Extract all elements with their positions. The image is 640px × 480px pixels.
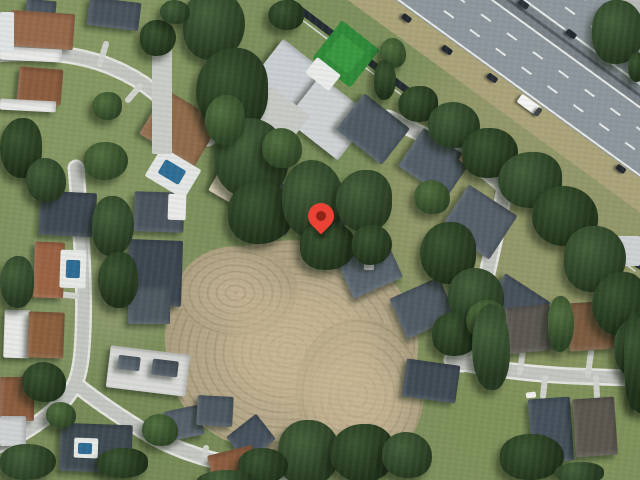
lane-edge-line — [327, 0, 640, 97]
tree-canopy — [278, 420, 340, 480]
house-roof — [128, 286, 170, 324]
driveway-court — [244, 85, 310, 150]
tree-canopy — [92, 196, 134, 256]
tree-canopy — [22, 362, 66, 402]
driveway — [58, 294, 76, 296]
tree-canopy — [228, 182, 294, 244]
highway-stripe — [336, 0, 640, 84]
marker-shadow — [314, 233, 328, 239]
tree-canopy — [238, 448, 288, 480]
white-roof-panel — [168, 194, 187, 221]
house-roof — [226, 414, 276, 463]
house-roof — [39, 191, 97, 238]
pool-enclosure — [145, 147, 202, 200]
tree-canopy — [398, 86, 438, 122]
white-shed — [305, 57, 341, 91]
tree-canopy — [330, 424, 394, 480]
location-marker[interactable] — [303, 198, 340, 235]
lane-dash-line — [316, 0, 640, 111]
house-roof — [0, 99, 56, 113]
tree-canopy — [98, 252, 138, 308]
green-lawn-inner — [325, 34, 366, 75]
trees-layer — [0, 0, 640, 480]
street — [0, 52, 208, 138]
dirt-field-blob — [296, 318, 424, 466]
tree-canopy — [548, 296, 574, 352]
house-roof — [117, 355, 141, 372]
tree-canopy — [592, 0, 640, 64]
house-roof — [127, 239, 183, 307]
house-roof — [25, 0, 57, 18]
tree-canopy — [142, 414, 178, 446]
tree-canopy — [46, 402, 76, 428]
street — [388, 118, 510, 192]
highway-stripe — [328, 0, 640, 95]
tree-canopy — [432, 312, 480, 356]
car — [615, 164, 627, 175]
house-roof — [163, 405, 204, 442]
house-roof — [9, 10, 75, 50]
swimming-pool — [66, 260, 81, 278]
lane-edge-line — [295, 0, 640, 140]
car — [565, 28, 577, 39]
tree-canopy — [92, 92, 122, 120]
house-roof — [106, 345, 191, 396]
tree-canopy — [462, 128, 518, 178]
lane-edge-line — [252, 0, 640, 200]
dirt-light-spot — [300, 360, 400, 440]
house-roof — [208, 140, 272, 210]
tree-canopy — [382, 432, 432, 478]
grass-patch — [0, 0, 240, 230]
tree-canopy — [205, 95, 245, 145]
street-sidewalk — [452, 360, 640, 378]
house-roof — [458, 143, 489, 173]
texture-overlay — [0, 0, 640, 480]
lane-dash-line — [262, 0, 640, 186]
highway-stripe — [295, 0, 640, 141]
dirt-light-spot — [228, 292, 378, 402]
structures-layer — [0, 0, 640, 480]
lane-edge-line — [289, 0, 640, 148]
house-roof — [86, 0, 141, 31]
driveway — [204, 448, 206, 462]
house-roof — [246, 175, 309, 237]
lane-edge-line — [284, 0, 640, 156]
highway-stripe — [251, 0, 640, 201]
house-roof — [196, 395, 234, 427]
tree-canopy — [352, 225, 392, 265]
tree-canopy — [84, 142, 128, 180]
tree-canopy — [564, 226, 626, 292]
highway-stripe — [235, 0, 640, 224]
driveway-strip — [152, 36, 172, 154]
street-sidewalk — [78, 386, 294, 474]
driveway — [596, 378, 597, 396]
tree-canopy — [630, 364, 640, 414]
house-roof — [33, 241, 65, 298]
tree-canopy — [532, 186, 598, 246]
house-roof — [528, 397, 574, 464]
house-roof — [479, 273, 550, 343]
small-building — [612, 236, 640, 266]
dirt-field-blob — [156, 227, 429, 464]
tree-canopy — [0, 444, 56, 480]
tree-canopy — [472, 304, 510, 390]
car — [441, 44, 453, 55]
tree-canopy — [380, 38, 406, 68]
street — [452, 360, 640, 378]
house-roof — [246, 39, 333, 126]
house-roof — [0, 46, 62, 62]
house-roof — [139, 89, 221, 167]
tree-canopy — [628, 52, 640, 82]
house-roof — [0, 416, 26, 446]
lane-dash-line — [306, 0, 640, 126]
grass-patch — [430, 330, 640, 480]
driveway — [62, 256, 80, 258]
tree-canopy — [196, 48, 268, 133]
street-sidewalk — [0, 168, 84, 446]
grass-patch — [40, 330, 260, 480]
tree-canopy — [262, 128, 302, 168]
dirt-field — [0, 0, 640, 480]
swimming-pool — [158, 159, 187, 185]
tree-canopy — [374, 60, 396, 100]
white-truck — [516, 94, 541, 116]
truck-cab — [533, 107, 542, 117]
tree-canopy — [500, 434, 564, 480]
driveway — [520, 350, 523, 372]
car — [401, 13, 413, 24]
swimming-pool — [78, 443, 92, 454]
dirt-field-blob — [178, 246, 298, 336]
house-roof — [389, 277, 456, 339]
driveway — [588, 352, 591, 374]
house-roof — [0, 377, 34, 421]
highway-layer — [0, 0, 640, 480]
pool-enclosure — [59, 250, 86, 289]
tree-canopy — [614, 318, 640, 378]
tree-canopy — [96, 448, 148, 478]
house-roof — [336, 93, 410, 165]
house-roof — [441, 184, 518, 259]
street-sidewalk — [462, 188, 505, 364]
satellite-map[interactable] — [0, 0, 640, 480]
tree-canopy — [624, 310, 640, 410]
house-roof — [59, 423, 133, 473]
tree-canopy — [448, 268, 504, 324]
canal-wall — [290, 2, 640, 266]
grass-patch — [0, 180, 160, 380]
canal-edge-path — [285, 7, 635, 271]
grass-patch — [60, 240, 180, 340]
house-roof — [286, 76, 372, 161]
car — [517, 0, 529, 10]
green-lawn — [312, 20, 379, 87]
house-roof — [402, 358, 461, 403]
house-roof — [151, 358, 179, 377]
house-roof — [207, 445, 259, 480]
car — [486, 72, 498, 83]
marker-layer — [0, 0, 640, 480]
tree-canopy — [160, 0, 190, 24]
roof-cupola — [364, 260, 374, 270]
tree-canopy — [466, 300, 506, 340]
tree-canopy — [26, 158, 66, 202]
tree-canopy — [196, 470, 256, 480]
grass-patch — [140, 60, 380, 220]
street — [462, 188, 505, 364]
street — [78, 386, 294, 474]
house-roof — [17, 66, 64, 106]
lane-dash-line — [273, 0, 640, 170]
grass-layer — [0, 0, 640, 480]
tree-canopy — [414, 180, 450, 214]
house-roof — [572, 397, 618, 458]
tree-canopy — [214, 118, 288, 198]
driveway — [452, 160, 470, 176]
tree-canopy — [282, 160, 344, 238]
tree-canopy — [428, 102, 480, 148]
tree-canopy — [336, 170, 392, 232]
tree-canopy — [140, 20, 176, 56]
roads-layer — [0, 0, 640, 480]
house-roof — [3, 310, 31, 359]
house-roof — [133, 191, 184, 233]
tree-canopy — [183, 0, 245, 60]
street-sidewalk — [388, 118, 510, 192]
driveway — [100, 44, 106, 64]
driveway — [128, 86, 140, 100]
houses-layer — [0, 0, 640, 480]
parked-car — [526, 391, 537, 398]
street — [0, 168, 84, 446]
tree-canopy — [300, 222, 356, 270]
pool-enclosure — [74, 438, 99, 459]
house-roof — [566, 300, 615, 351]
tree-canopy — [592, 272, 640, 336]
house-roof — [504, 304, 555, 355]
tree-canopy — [554, 462, 604, 480]
pool-deck — [0, 12, 14, 52]
house-roof — [335, 235, 403, 299]
tree-canopy — [498, 152, 562, 208]
house-roof — [27, 311, 65, 358]
house-roof — [398, 128, 472, 199]
grass-patch — [380, 40, 640, 370]
street-sidewalk — [0, 52, 208, 138]
tree-canopy — [268, 0, 304, 30]
house-roof — [294, 188, 353, 246]
interstate-highway — [235, 0, 640, 224]
tree-canopy — [0, 256, 34, 308]
tree-canopy — [420, 222, 476, 284]
tree-canopy — [0, 118, 42, 178]
car — [632, 69, 640, 80]
highway-stripe — [285, 0, 640, 154]
driveway — [543, 378, 545, 396]
